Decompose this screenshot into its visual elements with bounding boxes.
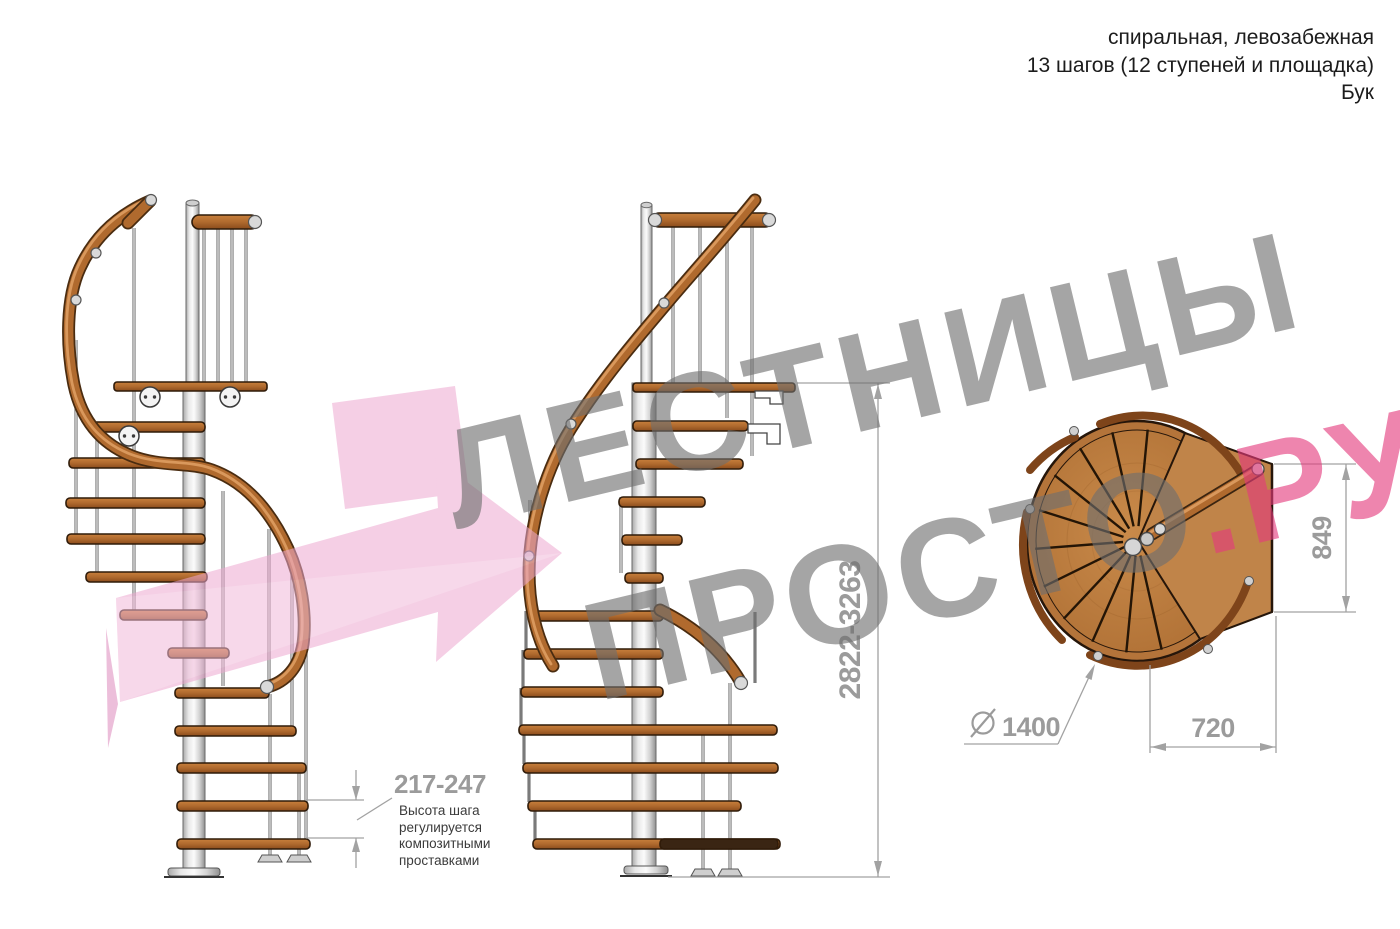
side-view-left-connector-discs (119, 387, 240, 446)
side-view-left (66, 195, 311, 878)
total-height-value: 2822-3263 (834, 561, 867, 700)
step-height-note: Высота шага регулируется композитными пр… (399, 803, 511, 870)
title-material-line: Бук (1027, 79, 1374, 107)
dimension-step-height (306, 770, 392, 868)
title-block: спиральная, левозабежная 13 шагов (12 ст… (1027, 24, 1374, 107)
top-view (1023, 416, 1272, 666)
side-view-front-top-rail (649, 213, 776, 227)
side-view-left-top-rail (192, 215, 262, 229)
title-steps-line: 13 шагов (12 ступеней и площадка) (1027, 52, 1374, 80)
landing-width-value: 720 (1191, 713, 1235, 743)
landing-depth-value: 849 (1307, 516, 1337, 560)
title-type-line: спиральная, левозабежная (1027, 24, 1374, 52)
diameter-symbol-icon (971, 709, 995, 737)
drawing-sheet: 2822-3263 217-247 1400 720 8 (0, 0, 1400, 929)
side-view-front (519, 198, 795, 876)
technical-drawing: 2822-3263 217-247 1400 720 8 (0, 0, 1400, 929)
step-height-value: 217-247 (394, 769, 486, 799)
diameter-value: 1400 (1002, 712, 1060, 742)
